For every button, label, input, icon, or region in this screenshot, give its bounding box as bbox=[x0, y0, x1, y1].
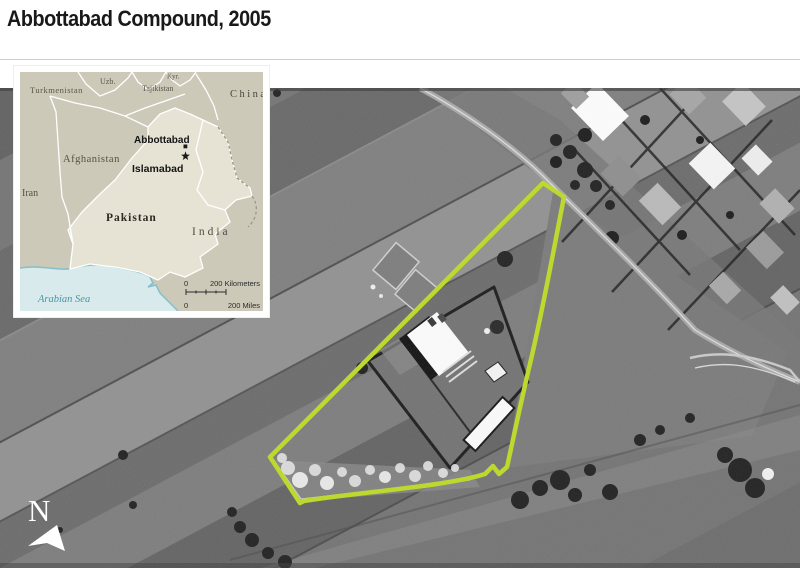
title-divider bbox=[0, 59, 800, 60]
label-uzb: Uzb. bbox=[100, 77, 115, 86]
label-india: India bbox=[192, 226, 231, 238]
scale-zero-km: 0 bbox=[184, 279, 188, 288]
scale-zero-mi: 0 bbox=[184, 301, 188, 310]
label-turkmenistan: Turkmenistan bbox=[30, 85, 83, 95]
scale-kilometers: 200 Kilometers bbox=[210, 279, 260, 288]
label-kyr: Kyr. bbox=[167, 73, 180, 81]
label-afghanistan: Afghanistan bbox=[63, 154, 120, 165]
inset-locator-map: Turkmenistan Uzb. Kyr. Tajikistan China … bbox=[13, 65, 270, 318]
label-islamabad: Islamabad bbox=[132, 163, 183, 175]
label-abbottabad: Abbottabad bbox=[134, 135, 190, 146]
label-pakistan: Pakistan bbox=[106, 212, 157, 224]
infographic-page: Abbottabad Compound, 2005 bbox=[0, 0, 800, 574]
scale-miles: 200 Miles bbox=[228, 301, 260, 310]
label-china: China bbox=[230, 89, 268, 100]
page-title: Abbottabad Compound, 2005 bbox=[7, 6, 271, 32]
label-arabian-sea: Arabian Sea bbox=[37, 294, 90, 305]
compass-label: N bbox=[28, 493, 50, 528]
label-iran: Iran bbox=[22, 188, 38, 199]
label-tajikistan: Tajikistan bbox=[142, 84, 173, 93]
